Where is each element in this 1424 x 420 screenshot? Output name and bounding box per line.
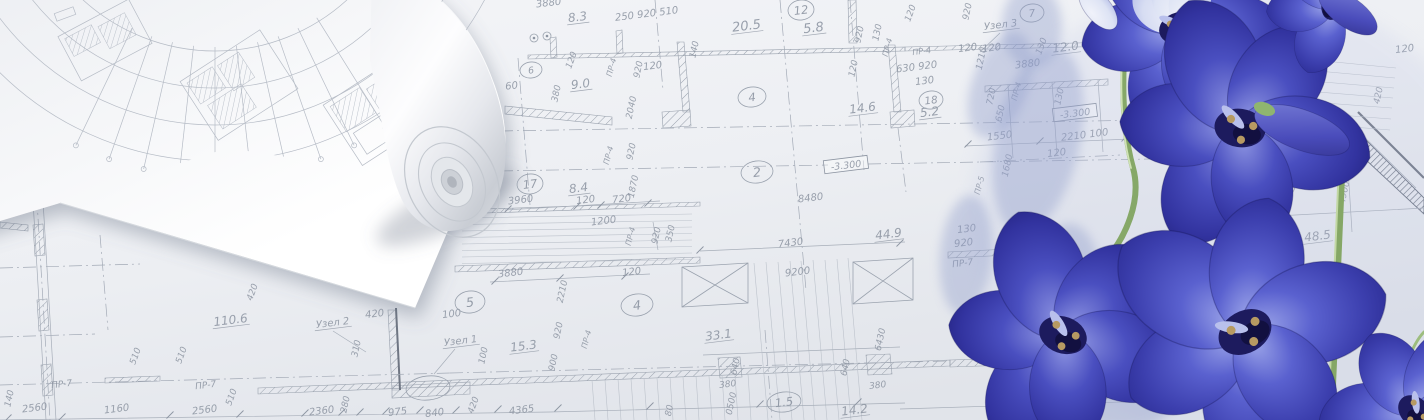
wall-stub <box>550 37 557 58</box>
dimension-label: 130 <box>915 75 935 88</box>
dimension-label: 120 <box>958 42 978 55</box>
axis-marker-label: 17 <box>522 176 539 192</box>
axis-marker-label: 18 <box>924 94 939 108</box>
dimension-label: 380 <box>719 379 738 391</box>
pier <box>866 354 892 375</box>
axis-marker-label: 12 <box>793 2 809 18</box>
dimension-label: 380 <box>869 380 888 392</box>
blueprint-banner: 38808.3250 920 51020.55.8120920130ПР-412… <box>0 0 1424 420</box>
dimension-label: 60 <box>505 80 519 92</box>
blueprint-scene: 38808.3250 920 51020.55.8120920130ПР-412… <box>0 0 1424 420</box>
axis-marker-label: 1.5 <box>774 394 794 410</box>
dimension-label: 420 <box>365 308 385 321</box>
column-dot <box>533 37 536 40</box>
dimension-label: 975 <box>388 406 408 419</box>
wall-stub <box>616 30 623 54</box>
dimension-label: 120 <box>576 194 596 207</box>
dimension-label: 840 <box>425 407 445 420</box>
column-dot <box>546 35 549 38</box>
pier <box>890 110 915 128</box>
dimension-label: 120 <box>622 266 642 279</box>
dimension-label: 120 <box>643 60 663 73</box>
pier <box>662 110 691 128</box>
